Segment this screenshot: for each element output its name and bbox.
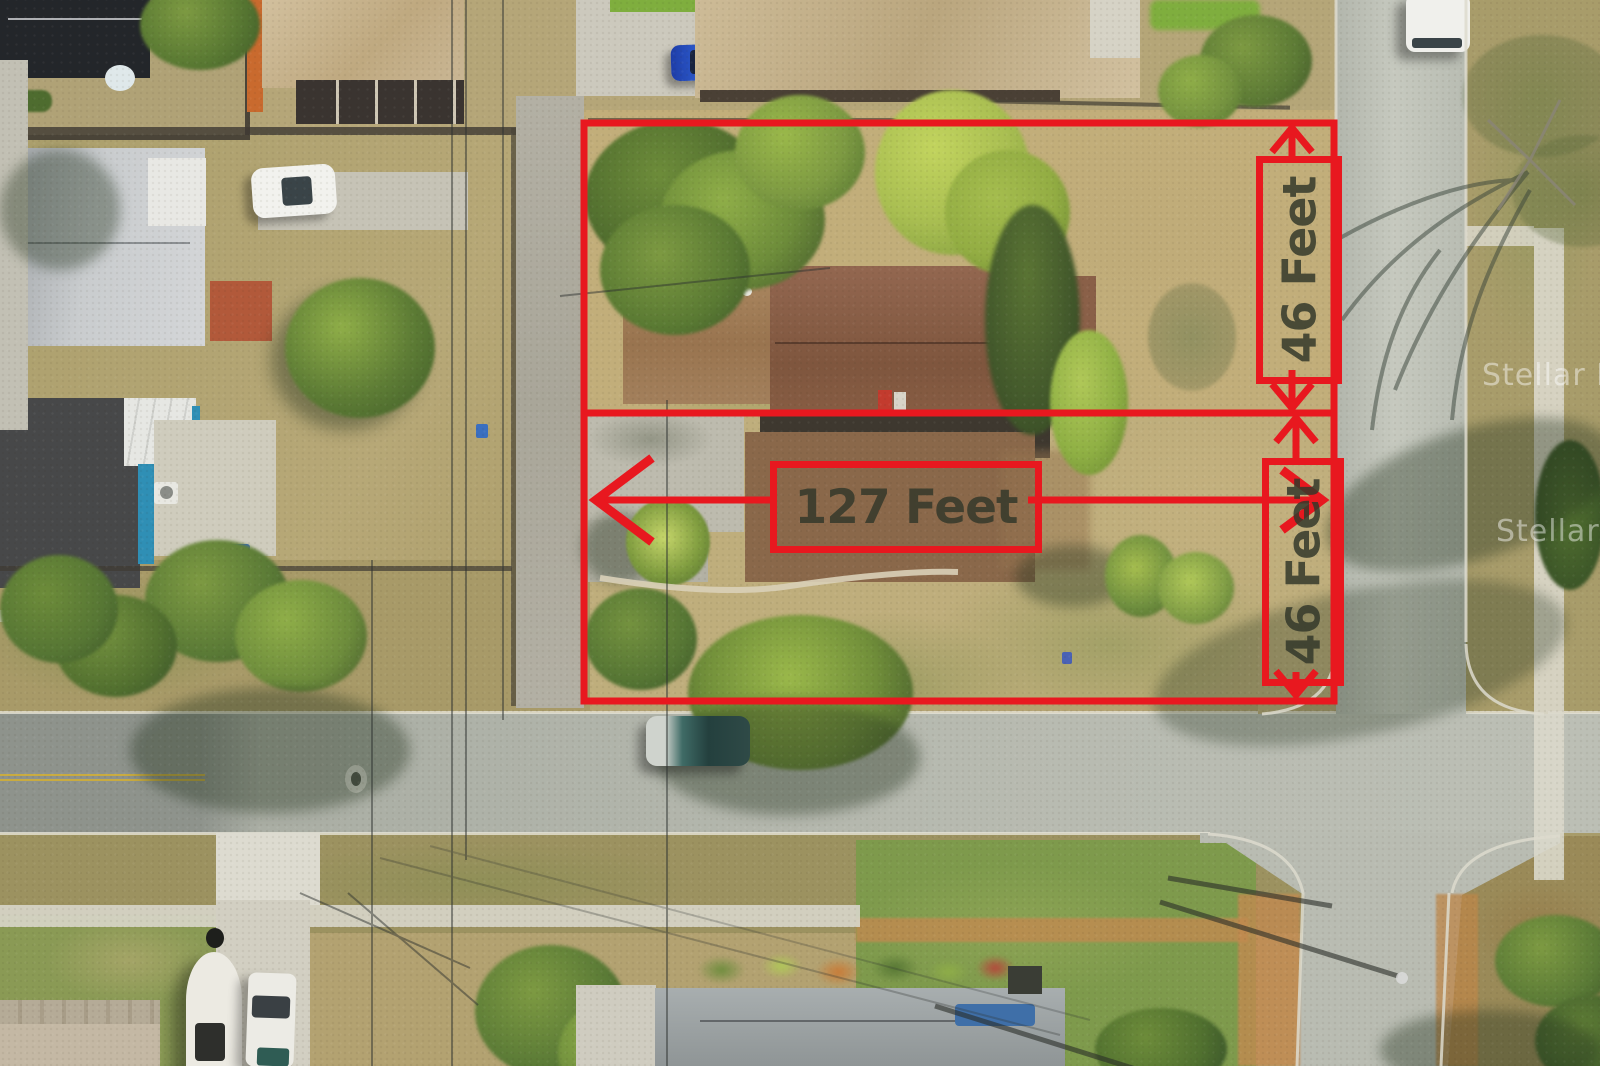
blue-wall-strip xyxy=(138,464,154,564)
gravel-driveway xyxy=(516,96,584,708)
dimension-text: 127 Feet xyxy=(795,480,1018,535)
gray-house-wing xyxy=(148,158,206,226)
blue-object xyxy=(1062,652,1072,664)
sparse-tree xyxy=(1148,283,1236,391)
paver-patio-sw xyxy=(0,1024,160,1066)
tan-house-east-roof xyxy=(695,0,1140,98)
boat-motor xyxy=(206,928,224,948)
porch-posts xyxy=(300,80,460,124)
ac-fan xyxy=(160,486,173,499)
dirt-path xyxy=(856,918,1248,942)
tree-canopy xyxy=(1158,55,1242,127)
street-bottom-curb xyxy=(0,832,1210,835)
concrete-sw xyxy=(576,985,656,1066)
white-car-sunroof xyxy=(281,176,313,206)
dimension-text: 46 Feet xyxy=(1276,479,1330,666)
tree-canopy xyxy=(600,205,750,335)
van-windshield xyxy=(1412,38,1462,48)
bottom-house-roof xyxy=(655,988,1065,1066)
dimension-label-width-north: 46 Feet xyxy=(1256,156,1342,384)
teal-suv xyxy=(646,716,750,766)
shed-roof xyxy=(210,281,272,341)
truck-windshield xyxy=(252,995,291,1018)
sidewalk-south xyxy=(0,905,860,927)
west-fence-line xyxy=(511,128,516,706)
aerial-photo: Stellar MLS Stellar MLS 46 Feet 46 Feet … xyxy=(0,0,1600,1066)
tree-canopy xyxy=(735,95,865,210)
tree-canopy xyxy=(0,555,118,663)
garden-shed xyxy=(1008,966,1042,994)
stone-wall xyxy=(0,1000,160,1024)
watermark: Stellar MLS xyxy=(1482,358,1600,393)
sidewalk-east-connector xyxy=(1466,226,1534,246)
boat-cockpit xyxy=(195,1023,225,1061)
equipment-white xyxy=(894,392,906,410)
yard-pool xyxy=(105,65,135,91)
north-fence xyxy=(0,127,582,135)
trash-bin-small xyxy=(476,424,488,438)
dimension-label-depth: 127 Feet xyxy=(770,461,1042,553)
dimension-text: 46 Feet xyxy=(1272,177,1326,364)
garden-row xyxy=(688,950,1022,990)
tree-canopy xyxy=(235,580,367,692)
tree-canopy xyxy=(585,588,697,690)
tree-canopy xyxy=(285,278,435,418)
dimension-label-width-south: 46 Feet xyxy=(1262,458,1344,686)
watermark: Stellar MLS xyxy=(1496,514,1600,549)
blue-tarp xyxy=(955,1004,1035,1026)
equipment-red xyxy=(878,390,892,410)
banana-plants xyxy=(1050,330,1128,475)
driveway-apron xyxy=(216,833,320,905)
dark-building-ridge xyxy=(8,18,142,20)
tan-house-west-roof xyxy=(262,0,464,88)
tan-house-patio xyxy=(1090,0,1140,58)
palm xyxy=(1158,552,1234,624)
palm xyxy=(626,498,710,586)
truck-bed-cover xyxy=(257,1047,290,1066)
